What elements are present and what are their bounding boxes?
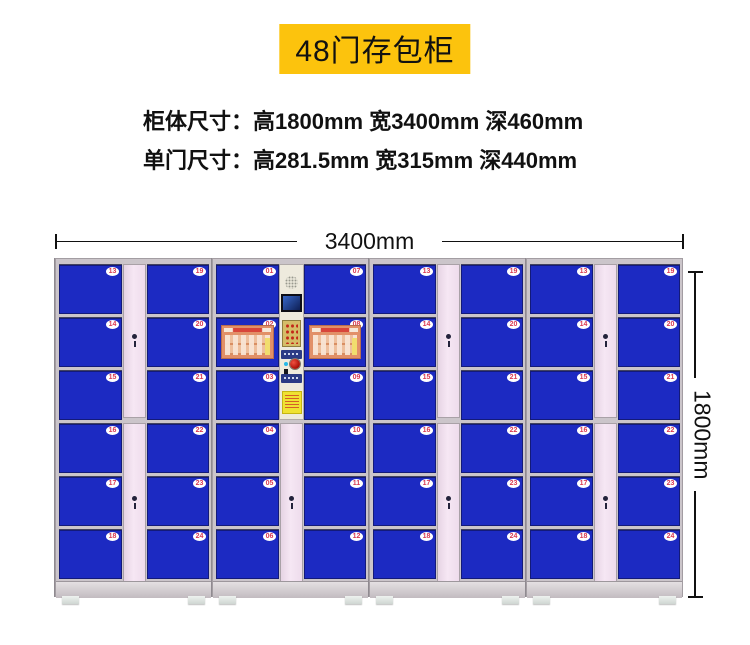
locker-door-21: 21 — [618, 370, 680, 420]
dimension-tick — [682, 234, 684, 249]
locker-door-13: 13 — [373, 264, 436, 314]
locker-door-05: 05 — [216, 476, 279, 526]
door-number-badge: 23 — [193, 479, 206, 488]
locker-door-19: 19 — [618, 264, 680, 314]
warning-sticker — [282, 391, 302, 414]
locker-door-13: 13 — [59, 264, 122, 314]
center-key-door-lower — [280, 423, 303, 582]
unit-4-center-column — [593, 264, 618, 582]
width-dimension-line: 3400mm — [55, 228, 684, 255]
locker-door-20: 20 — [461, 317, 523, 367]
door-number-badge: 12 — [350, 532, 363, 541]
cabinet-foot — [62, 596, 79, 604]
unit-3-left-door-column: 131415161718 — [373, 264, 436, 582]
door-number-badge: 22 — [507, 426, 520, 435]
locker-door-17: 17 — [373, 476, 436, 526]
locker-door-23: 23 — [461, 476, 523, 526]
locker-door-22: 22 — [147, 423, 209, 473]
door-number-badge: 18 — [106, 532, 119, 541]
key-lock — [289, 496, 294, 501]
center-key-door-lower — [594, 423, 617, 582]
door-number-badge: 19 — [507, 267, 520, 276]
width-dimension-label: 3400mm — [297, 228, 442, 255]
dimension-line — [57, 241, 297, 243]
door-number-badge: 24 — [507, 532, 520, 541]
locker-door-23: 23 — [618, 476, 680, 526]
door-number-badge: 23 — [664, 479, 677, 488]
door-number-badge: 21 — [664, 373, 677, 382]
locker-door-20: 20 — [618, 317, 680, 367]
door-number-badge: 13 — [577, 267, 590, 276]
display-screen — [281, 294, 302, 312]
locker-door-03: 03 — [216, 370, 279, 420]
center-key-door-upper — [123, 264, 146, 418]
locker-door-22: 22 — [618, 423, 680, 473]
locker-door-06: 06 — [216, 529, 279, 579]
door-number-badge: 24 — [664, 532, 677, 541]
locker-door-07: 07 — [304, 264, 366, 314]
door-number-badge: 22 — [664, 426, 677, 435]
locker-door-17: 17 — [530, 476, 593, 526]
unit-2-main-left-door-column: 010203040506 — [216, 264, 279, 582]
cabinet-foot — [502, 596, 519, 604]
locker-door-02: 02 — [216, 317, 279, 367]
product-spec-image: 48门存包柜 柜体尺寸：高1800mm 宽3400mm 深460mm 单门尺寸：… — [0, 0, 750, 645]
cabinet-size-value: 高1800mm 宽3400mm 深460mm — [253, 109, 583, 134]
door-number-badge: 10 — [350, 426, 363, 435]
door-number-badge: 18 — [577, 532, 590, 541]
dimension-line — [442, 241, 682, 243]
locker-door-21: 21 — [461, 370, 523, 420]
key-lock — [132, 496, 137, 501]
locker-door-18: 18 — [530, 529, 593, 579]
door-number-badge: 04 — [263, 426, 276, 435]
unit-3-right-door-column: 192021222324 — [461, 264, 523, 582]
door-number-badge: 17 — [577, 479, 590, 488]
door-number-badge: 20 — [507, 320, 520, 329]
confirm-button — [290, 359, 300, 369]
door-number-badge: 22 — [193, 426, 206, 435]
door-number-badge: 17 — [106, 479, 119, 488]
unit-1: 131415161718192021222324 — [55, 258, 212, 597]
cabinet-foot — [533, 596, 550, 604]
key-lock — [446, 334, 451, 339]
locker-door-19: 19 — [461, 264, 523, 314]
door-number-badge: 03 — [263, 373, 276, 382]
unit-3-center-column — [436, 264, 461, 582]
title-banner: 48门存包柜 — [279, 24, 470, 74]
locker-door-13: 13 — [530, 264, 593, 314]
locker-door-21: 21 — [147, 370, 209, 420]
door-number-badge: 18 — [420, 532, 433, 541]
door-number-badge: 17 — [420, 479, 433, 488]
dimension-tick — [688, 596, 703, 598]
key-lock — [603, 334, 608, 339]
unit-4: 131415161718192021222324 — [526, 258, 683, 597]
locker-door-20: 20 — [147, 317, 209, 367]
door-number-badge: 15 — [577, 373, 590, 382]
unit-2-main-right-door-column: 070809101112 — [304, 264, 366, 582]
card-reader-label — [281, 350, 302, 359]
locker-door-14: 14 — [530, 317, 593, 367]
locker-door-10: 10 — [304, 423, 366, 473]
key-lock — [446, 496, 451, 501]
unit-2-main-center-column — [279, 264, 304, 582]
locker-door-09: 09 — [304, 370, 366, 420]
door-number-badge: 21 — [507, 373, 520, 382]
locker-door-24: 24 — [147, 529, 209, 579]
door-number-badge: 23 — [507, 479, 520, 488]
locker-door-24: 24 — [461, 529, 523, 579]
door-number-badge: 14 — [420, 320, 433, 329]
door-number-badge: 20 — [193, 320, 206, 329]
height-dimension-line: 1800mm — [679, 271, 711, 598]
door-number-badge: 09 — [350, 373, 363, 382]
door-number-badge: 16 — [577, 426, 590, 435]
unit-4-left-door-column: 131415161718 — [530, 264, 593, 582]
locker-door-15: 15 — [59, 370, 122, 420]
spec-lines: 柜体尺寸：高1800mm 宽3400mm 深460mm 单门尺寸：高281.5m… — [143, 102, 583, 180]
locker-door-14: 14 — [59, 317, 122, 367]
door-size-value: 高281.5mm 宽315mm 深440mm — [253, 148, 577, 173]
door-number-badge: 15 — [420, 373, 433, 382]
unit-1-right-door-column: 192021222324 — [147, 264, 209, 582]
center-key-door-upper — [437, 264, 460, 418]
door-size-label: 单门尺寸： — [143, 148, 253, 173]
door-number-badge: 16 — [420, 426, 433, 435]
door-number-badge: 16 — [106, 426, 119, 435]
locker-cabinet: 1314151617181920212223240102030405060708… — [55, 258, 684, 604]
door-number-badge: 05 — [263, 479, 276, 488]
door-number-badge: 13 — [106, 267, 119, 276]
center-key-door-lower — [123, 423, 146, 582]
unit-1-center-column — [122, 264, 147, 582]
unit-4-right-door-column: 192021222324 — [618, 264, 680, 582]
dimension-line — [694, 273, 696, 378]
key-lock — [603, 496, 608, 501]
door-number-badge: 21 — [193, 373, 206, 382]
door-number-badge: 01 — [263, 267, 276, 276]
locker-door-15: 15 — [530, 370, 593, 420]
center-key-door-lower — [437, 423, 460, 582]
door-number-badge: 20 — [664, 320, 677, 329]
cabinet-foot — [376, 596, 393, 604]
locker-door-12: 12 — [304, 529, 366, 579]
cabinet-size-line: 柜体尺寸：高1800mm 宽3400mm 深460mm — [143, 102, 583, 141]
locker-door-16: 16 — [59, 423, 122, 473]
locker-door-08: 08 — [304, 317, 366, 367]
key-lock — [132, 334, 137, 339]
door-number-badge: 13 — [420, 267, 433, 276]
locker-door-18: 18 — [373, 529, 436, 579]
door-number-badge: 15 — [106, 373, 119, 382]
cabinet-size-label: 柜体尺寸： — [143, 109, 253, 134]
locker-door-24: 24 — [618, 529, 680, 579]
locker-door-18: 18 — [59, 529, 122, 579]
cabinet-foot — [188, 596, 205, 604]
unit-3: 131415161718192021222324 — [369, 258, 526, 597]
door-number-badge: 24 — [193, 532, 206, 541]
cabinet-foot — [345, 596, 362, 604]
locker-door-17: 17 — [59, 476, 122, 526]
brand-label — [281, 374, 302, 383]
locker-door-14: 14 — [373, 317, 436, 367]
door-number-badge: 07 — [350, 267, 363, 276]
control-panel — [279, 264, 304, 420]
cabinet-foot — [659, 596, 676, 604]
locker-door-15: 15 — [373, 370, 436, 420]
door-number-badge: 19 — [193, 267, 206, 276]
instruction-poster — [309, 325, 361, 359]
locker-door-19: 19 — [147, 264, 209, 314]
indicator-led — [284, 362, 288, 366]
page-title: 48门存包柜 — [295, 35, 454, 68]
door-number-badge: 19 — [664, 267, 677, 276]
center-key-door-upper — [594, 264, 617, 418]
height-dimension-label: 1800mm — [689, 378, 716, 491]
cabinet-foot — [219, 596, 236, 604]
unit-2-main: 010203040506070809101112 — [212, 258, 369, 597]
door-number-badge: 06 — [263, 532, 276, 541]
instruction-poster — [221, 325, 274, 359]
locker-door-16: 16 — [530, 423, 593, 473]
door-number-badge: 14 — [577, 320, 590, 329]
locker-door-23: 23 — [147, 476, 209, 526]
locker-door-16: 16 — [373, 423, 436, 473]
door-size-line: 单门尺寸：高281.5mm 宽315mm 深440mm — [143, 141, 583, 180]
dimension-line — [694, 491, 696, 596]
keypad — [282, 320, 301, 347]
door-number-badge: 11 — [350, 479, 363, 488]
locker-door-22: 22 — [461, 423, 523, 473]
unit-1-left-door-column: 131415161718 — [59, 264, 122, 582]
locker-door-01: 01 — [216, 264, 279, 314]
speaker-grille — [285, 276, 298, 289]
locker-door-04: 04 — [216, 423, 279, 473]
door-number-badge: 14 — [106, 320, 119, 329]
locker-door-11: 11 — [304, 476, 366, 526]
